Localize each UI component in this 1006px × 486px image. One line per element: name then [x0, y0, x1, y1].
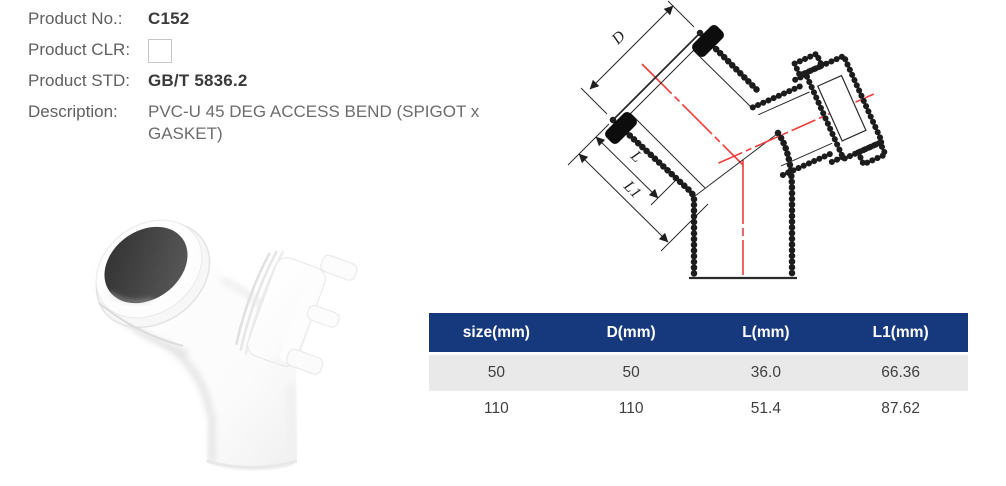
product-no-value: C152: [148, 8, 189, 30]
product-clr-checkbox[interactable]: [148, 39, 172, 63]
access-port: [694, 39, 898, 218]
col-l1: L1(mm): [833, 324, 968, 342]
technical-drawing: D L L1: [556, 0, 1006, 300]
product-clr-row: Product CLR:: [28, 39, 498, 63]
product-info: Product No.: C152 Product CLR: Product S…: [28, 8, 498, 154]
dimensions-table: size(mm) D(mm) L(mm) L1(mm) 50 50 36.0 6…: [429, 313, 968, 427]
table-row: 110 110 51.4 87.62: [429, 391, 968, 427]
product-std-label: Product STD:: [28, 70, 148, 92]
product-std-value: GB/T 5836.2: [148, 70, 248, 92]
product-photo: [75, 203, 365, 484]
product-no-label: Product No.:: [28, 8, 148, 30]
pvc-bend-photo: [75, 203, 365, 484]
table-header: size(mm) D(mm) L(mm) L1(mm): [429, 313, 968, 352]
product-std-row: Product STD: GB/T 5836.2: [28, 70, 498, 92]
product-no-row: Product No.: C152: [28, 8, 498, 30]
product-desc-label: Description:: [28, 101, 148, 123]
cell-l1: 87.62: [833, 400, 968, 418]
cell-d: 50: [564, 364, 699, 382]
product-clr-label: Product CLR:: [28, 39, 148, 61]
bend-section-drawing: D L L1: [556, 0, 1006, 300]
col-d: D(mm): [564, 324, 699, 342]
dimension-lines: [568, 1, 708, 251]
dim-label-d: D: [608, 27, 629, 48]
catalog-page: Product No.: C152 Product CLR: Product S…: [0, 0, 1006, 486]
cell-size: 50: [429, 364, 564, 382]
cell-l1: 66.36: [833, 364, 968, 382]
cell-d: 110: [564, 400, 699, 418]
product-desc-row: Description: PVC-U 45 DEG ACCESS BEND (S…: [28, 101, 498, 145]
cell-l: 36.0: [699, 364, 834, 382]
cap-tab-middle: [306, 304, 341, 329]
col-l: L(mm): [699, 324, 834, 342]
col-size: size(mm): [429, 324, 564, 342]
table-row: 50 50 36.0 66.36: [429, 355, 968, 391]
cell-l: 51.4: [699, 400, 834, 418]
cell-size: 110: [429, 400, 564, 418]
product-desc-value: PVC-U 45 DEG ACCESS BEND (SPIGOT x GASKE…: [148, 101, 482, 145]
